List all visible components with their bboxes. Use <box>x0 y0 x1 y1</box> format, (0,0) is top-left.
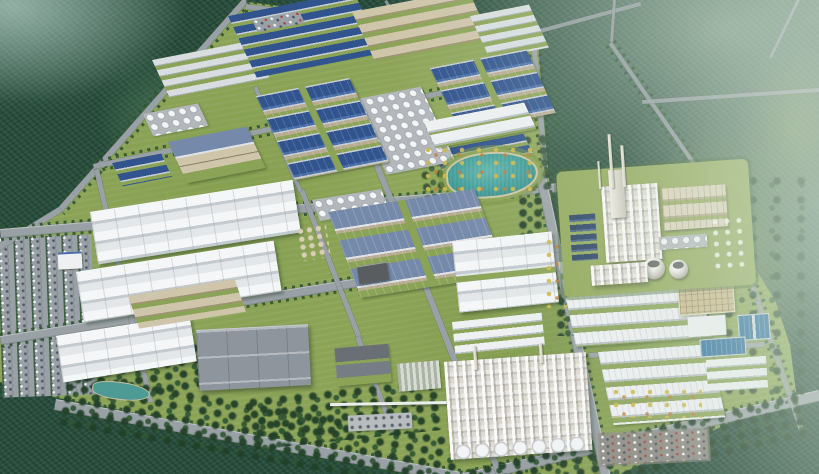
substation-pad <box>348 412 413 431</box>
cottage-grid <box>296 223 331 261</box>
solar-panel-rows <box>569 213 598 261</box>
industrial-park-aerial-rendering <box>0 0 819 474</box>
small-office-white <box>58 251 83 269</box>
water-treatment-pool-2 <box>699 336 746 357</box>
greenhouse-hall <box>397 360 441 392</box>
gray-hall-pair <box>334 344 391 387</box>
fire-lane <box>397 200 438 287</box>
autumn-trees-lake <box>424 146 544 198</box>
chemical-plant <box>444 352 592 460</box>
white-rows-far-southeast <box>706 356 768 392</box>
fire-lane <box>298 86 344 171</box>
gray-production-hall <box>196 324 311 391</box>
plant-misc-structures <box>591 262 648 286</box>
white-equipment-yard <box>710 215 748 269</box>
cooling-tower-2 <box>668 259 688 279</box>
white-halls-center-east <box>452 232 559 313</box>
cement-plant-site <box>556 159 756 298</box>
office-white-small <box>687 315 726 338</box>
southeast-parking-lot <box>599 429 708 465</box>
yard-gap <box>456 266 556 282</box>
autumn-trees-southeast <box>612 388 702 418</box>
cement-silos <box>659 234 708 250</box>
